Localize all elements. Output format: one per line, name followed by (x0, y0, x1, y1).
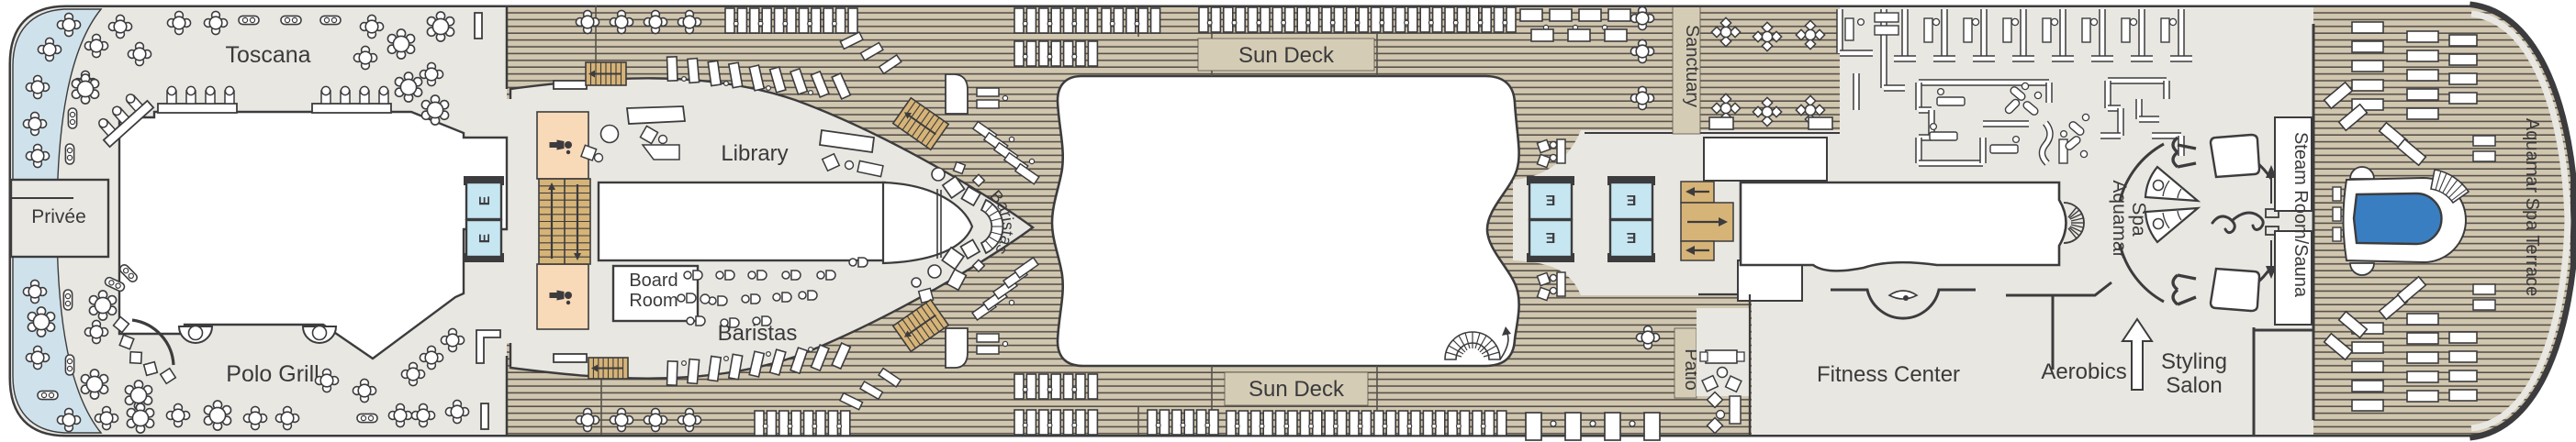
svg-text:Sun Deck: Sun Deck (1249, 377, 1345, 402)
svg-text:Privée: Privée (31, 206, 86, 227)
svg-text:E: E (1626, 229, 1636, 245)
svg-text:Room: Room (629, 291, 678, 311)
svg-text:Spa: Spa (2128, 202, 2149, 237)
svg-text:E: E (1545, 192, 1555, 207)
svg-text:Library: Library (721, 141, 788, 166)
svg-text:Board: Board (629, 271, 678, 291)
svg-text:E: E (477, 233, 493, 243)
svg-text:Styling: Styling (2161, 349, 2227, 374)
svg-text:Sun Deck: Sun Deck (1238, 43, 1335, 68)
svg-text:Salon: Salon (2166, 373, 2222, 398)
svg-text:Aerobics: Aerobics (2041, 359, 2126, 384)
svg-text:Sanctuary: Sanctuary (1682, 25, 1702, 107)
svg-text:E: E (1545, 229, 1555, 245)
svg-text:Aquamar Spa Terrace: Aquamar Spa Terrace (2522, 118, 2542, 296)
svg-text:Toscana: Toscana (225, 42, 310, 68)
svg-text:E: E (1626, 192, 1636, 207)
svg-text:Aquamar: Aquamar (2109, 180, 2130, 258)
svg-text:Fitness Center: Fitness Center (1817, 362, 1960, 387)
svg-text:E: E (477, 195, 493, 205)
svg-text:Steam Room/Sauna: Steam Room/Sauna (2290, 132, 2311, 298)
svg-text:Polo Grill: Polo Grill (226, 361, 319, 387)
